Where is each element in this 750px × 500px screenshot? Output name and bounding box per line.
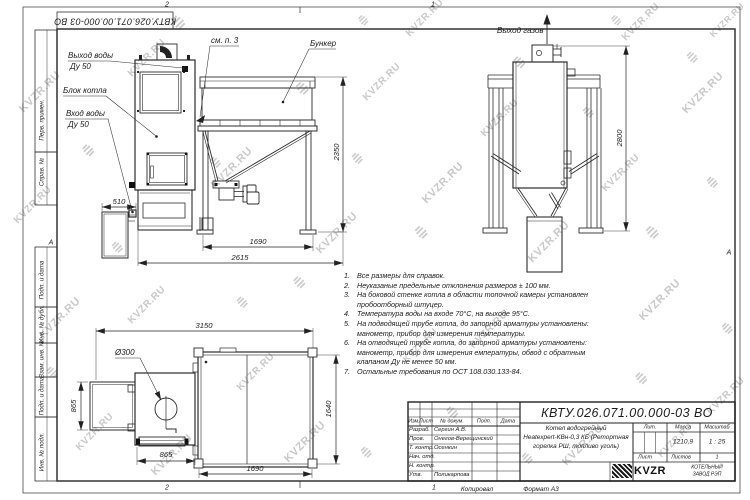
dim-1690-plan: 1690 [247, 465, 264, 473]
zone-number: 1 [432, 485, 436, 492]
tb-name: Поликарпова [434, 473, 470, 479]
note-item: 4.Температура воды на входе 70°С, на вых… [344, 309, 598, 319]
frame-column-label: Справ. № [38, 158, 45, 186]
label-diameter-300: Ø300 [115, 349, 135, 357]
tb-name: Сергин А.В. [434, 428, 466, 434]
frame-column-label: Инв. № подл. [38, 433, 45, 471]
dim-865-left: 865 [70, 400, 78, 413]
zone-number: 1 [431, 2, 435, 9]
note-item: 3.На боковой стенке котла в области топо… [344, 290, 598, 309]
tb-role: Н. контр. [409, 464, 435, 470]
dim-3150: 3150 [196, 322, 213, 330]
side-marker: А [727, 250, 732, 257]
tb-header-dokum: № докум. [440, 419, 464, 424]
tb-scale-label: Масштаб [704, 425, 729, 430]
tb-role: Нач. отд. [409, 455, 435, 461]
kvzr-logo-icon [612, 464, 632, 478]
tb-role: Т. контр. [409, 446, 434, 452]
tb-role: Пров. [409, 437, 424, 443]
tb-role: Утв. [409, 473, 422, 479]
company-logo-text: KVZR [634, 465, 666, 477]
company-name-line1: КОТЕЛЬНЫЙ [691, 466, 722, 471]
tb-name: Онегов-Верещинский [434, 437, 493, 443]
technical-notes: 1.Все размеры для справок. 2.Неуказаные … [344, 271, 598, 377]
tb-header-podp: Подп. [477, 419, 491, 424]
tb-sheets-value: 1 [716, 455, 719, 460]
label-water-out: Выход воды [68, 52, 113, 60]
dim-2350: 2350 [333, 144, 341, 161]
side-marker: А [49, 240, 54, 247]
label-water-in-du: Ду 50 [68, 121, 89, 129]
frame-column-label: Перв. примен. [38, 99, 45, 140]
product-name-line3: горелка РШ, топливо уголь) [533, 444, 619, 450]
tb-sheets-label: Листов [671, 455, 691, 460]
product-name-line1: Котел водогрейный [546, 426, 607, 432]
frame-column-label: Взам. инв. № [38, 340, 45, 378]
dim-1690: 1690 [250, 238, 267, 246]
tb-sheet-label: Лист [638, 455, 652, 460]
tb-role: Разраб. [409, 428, 430, 434]
note-item: 2.Неуказаные предельные отклонения разме… [344, 281, 598, 291]
label-water-in: Вход воды [66, 110, 105, 118]
dim-510: 510 [113, 198, 126, 206]
format-label: Формат А3 [523, 487, 559, 494]
frame-column-label: Подп. и дата [38, 377, 45, 416]
label-bunker: Бункер [310, 40, 336, 48]
tb-header-data: Дата [501, 419, 515, 424]
tb-mass-value: 1210,9 [673, 439, 693, 446]
frame-column-label: Инв. № дубл. [38, 305, 45, 343]
dim-2615: 2615 [232, 254, 249, 262]
zone-number: 2 [165, 485, 169, 492]
note-item: 6.На отводящей трубе котла, до запорной … [344, 338, 598, 367]
dim-2800: 2800 [616, 130, 624, 147]
note-item: 7.Остальные требования по ОСТ 108.030.13… [344, 367, 598, 377]
copied-label: Копировал [461, 487, 493, 494]
label-boiler-block: Блок котла [63, 87, 107, 95]
tb-header-izm: Изм. [408, 419, 420, 424]
note-item: 5.На подводящей трубе котла, до запорной… [344, 319, 598, 338]
product-name-line2: Heatexpert-КВн-0,3 КБ (Ретортная [523, 435, 628, 441]
tb-header-list: Лист [419, 419, 433, 424]
dim-1640: 1640 [325, 401, 333, 418]
note-item: 1.Все размеры для справок. [344, 271, 598, 281]
tb-name: Осенкин [434, 446, 457, 452]
frame-column-label: Подп. и дата [38, 261, 45, 300]
company-name-line2: ЗАВОД РЭП [693, 473, 722, 478]
titleblock-doc-number: КВТУ.026.071.00.000-03 ВО [541, 407, 713, 420]
label-water-out-du: Ду 50 [70, 63, 91, 71]
label-see-note: см. п. 3 [211, 37, 238, 45]
top-doc-number: КВТУ.026.071.00.000-03 ВО [54, 16, 176, 25]
tb-lit-label: Лит. [644, 425, 657, 430]
text-layer: КВТУ.026.071.00.000-03 ВО 2 1 2 1 А А Пе… [0, 0, 750, 500]
zone-number: 2 [165, 2, 169, 9]
label-gas-out: Выход газов [497, 27, 544, 35]
tb-mass-label: Масса [675, 425, 691, 430]
tb-scale-value: 1 : 25 [709, 439, 726, 446]
dim-865-bottom: 865 [160, 451, 173, 459]
engineering-drawing-sheet: KVZR.RUKVZR.RUKVZR.RUKVZR.RUKVZR.RUKVZR.… [0, 0, 750, 500]
